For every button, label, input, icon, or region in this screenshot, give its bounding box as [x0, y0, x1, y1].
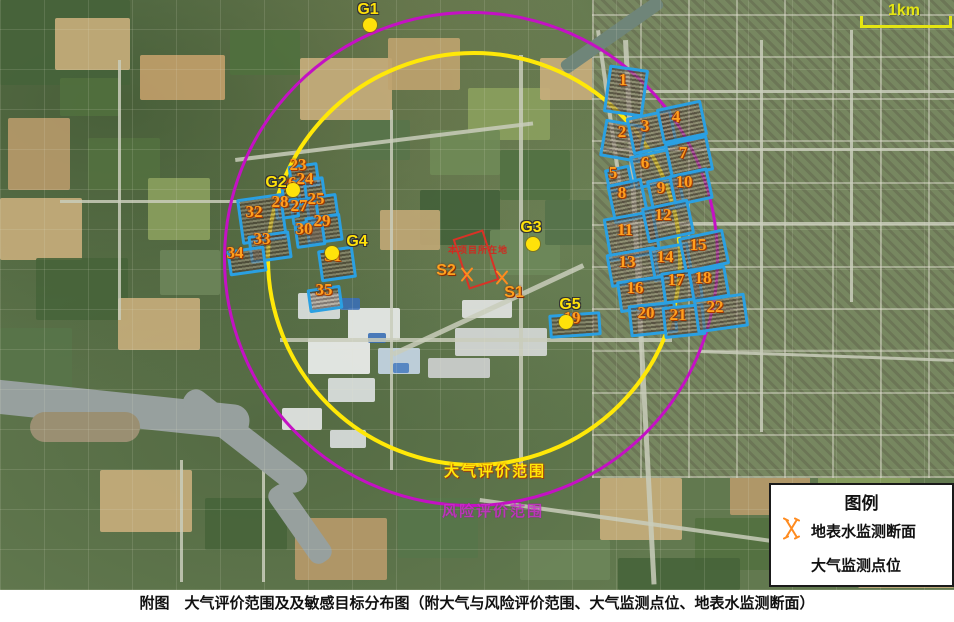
water-section-symbol — [460, 267, 474, 288]
sensitive-target-label: 21 — [670, 305, 687, 325]
sensitive-target-label: 35 — [316, 280, 333, 300]
air-monitoring-label: G3 — [520, 219, 541, 237]
satellite-map: 大气评价范围 风险评价范围 本项目所在地 1234567891011121314… — [0, 0, 954, 590]
air-monitoring-dot — [286, 183, 300, 197]
air-circle-label: 大气评价范围 — [444, 460, 546, 481]
sensitive-target-label: 16 — [627, 278, 644, 298]
legend: 图例 地表水监测断面 大气监测点位 — [769, 483, 954, 587]
figure-caption: 附图 大气评价范围及及敏感目标分布图（附大气与风险评价范围、大气监测点位、地表水… — [0, 592, 954, 613]
sensitive-target-label: 30 — [296, 219, 313, 239]
legend-item-label: 大气监测点位 — [811, 555, 901, 576]
sensitive-target-label: 29 — [314, 211, 331, 231]
sensitive-target-label: 34 — [227, 243, 244, 263]
sensitive-target-label: 10 — [676, 172, 693, 192]
sensitive-target-label: 25 — [308, 189, 325, 209]
risk-circle-label: 风险评价范围 — [442, 500, 544, 521]
water-section-icon — [783, 518, 800, 545]
air-monitoring-dot — [559, 315, 573, 329]
sensitive-target-label: 17 — [668, 270, 685, 290]
sensitive-target-label: 20 — [638, 303, 655, 323]
air-monitoring-dot — [363, 18, 377, 32]
sensitive-target-label: 27 — [291, 196, 308, 216]
project-site-label: 本项目所在地 — [448, 243, 508, 256]
air-monitoring-dot — [526, 237, 540, 251]
sensitive-target-label: 5 — [609, 163, 618, 183]
sensitive-target-label: 4 — [672, 107, 681, 127]
sensitive-target-label: 13 — [619, 252, 636, 272]
water-section-label: S2 — [436, 262, 456, 280]
air-monitoring-label: G4 — [346, 233, 367, 251]
sensitive-target-label: 32 — [246, 202, 263, 222]
air-monitoring-label: G1 — [357, 1, 378, 19]
sensitive-target-label: 15 — [690, 235, 707, 255]
sensitive-target-label: 33 — [254, 229, 271, 249]
sensitive-target-label: 3 — [641, 116, 650, 136]
legend-title: 图例 — [771, 489, 952, 514]
air-monitoring-label: G5 — [559, 296, 580, 314]
water-section-label: S1 — [504, 284, 524, 302]
sensitive-target-label: 9 — [657, 178, 666, 198]
legend-item-label: 地表水监测断面 — [811, 521, 916, 542]
air-monitoring-dot — [325, 246, 339, 260]
legend-item: 地表水监测断面 — [771, 514, 952, 548]
legend-item: 大气监测点位 — [771, 548, 952, 582]
sensitive-target-label: 12 — [655, 205, 672, 225]
sensitive-target-label: 1 — [619, 70, 628, 90]
sensitive-target-label: 14 — [657, 247, 674, 267]
sensitive-target-label: 18 — [695, 268, 712, 288]
figure-page: 大气评价范围 风险评价范围 本项目所在地 1234567891011121314… — [0, 0, 954, 622]
sensitive-target-label: 28 — [272, 192, 289, 212]
sensitive-target-label: 6 — [641, 153, 650, 173]
sensitive-target-label: 11 — [617, 220, 633, 240]
sensitive-target-label: 7 — [679, 143, 688, 163]
sensitive-target-label: 8 — [618, 183, 627, 203]
scale-bar: 1km — [858, 4, 950, 28]
sensitive-target-label: 22 — [707, 297, 724, 317]
sensitive-target-label: 2 — [618, 122, 627, 142]
air-monitoring-label: G2 — [265, 174, 286, 192]
scale-bar-line — [860, 16, 952, 28]
